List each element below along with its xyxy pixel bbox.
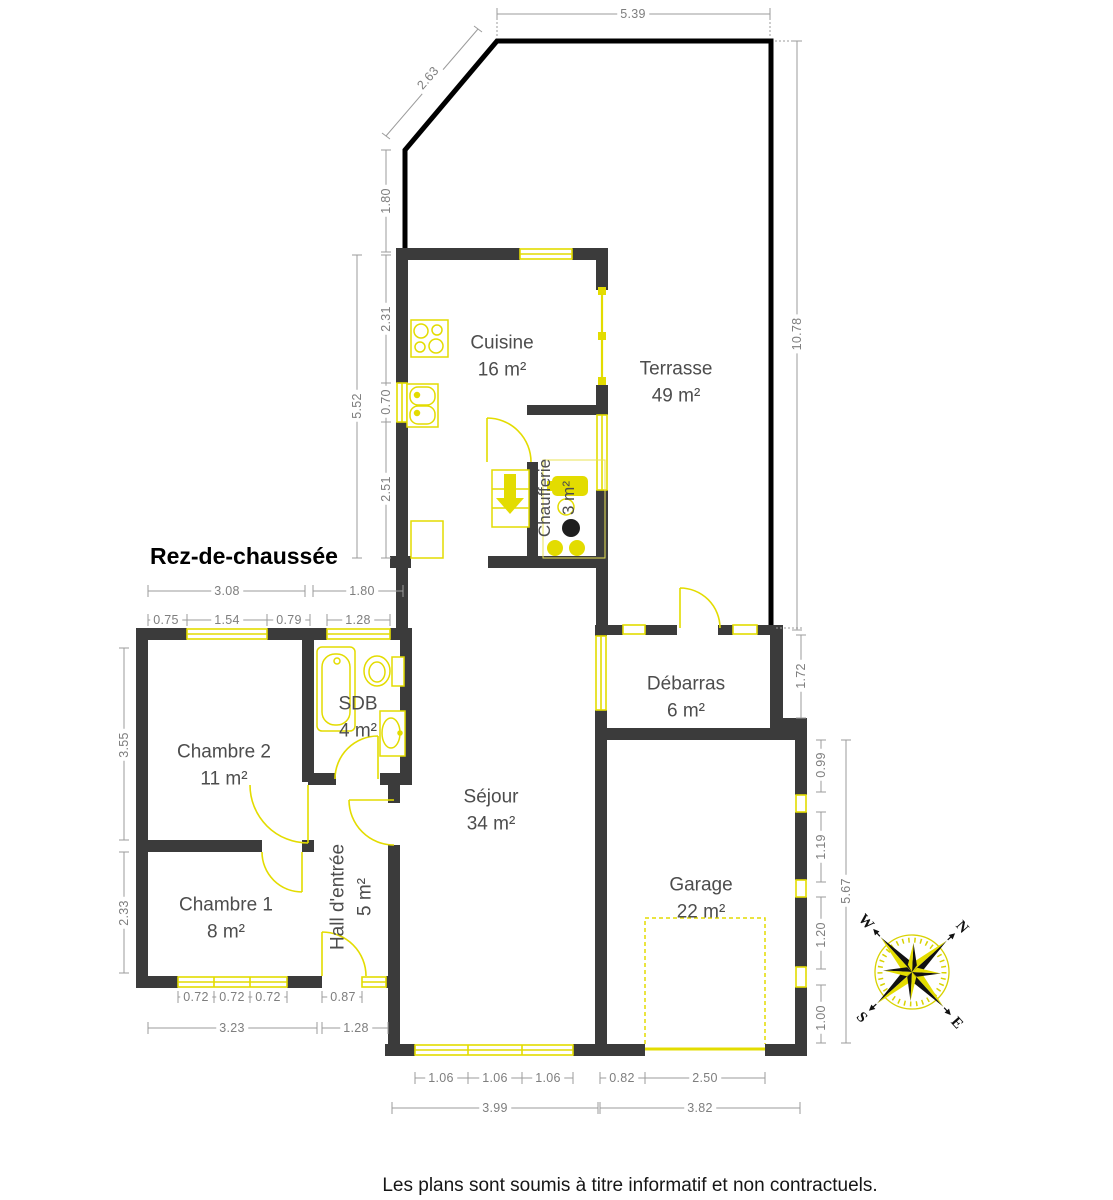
room-name: Chambre 2 <box>177 739 271 766</box>
glass-door <box>598 287 606 385</box>
dim-ch1-c: 0.72 <box>252 990 284 1004</box>
dim-ch1-b: 0.72 <box>216 990 248 1004</box>
room-label-chambre2: Chambre 2 11 m² <box>177 739 271 792</box>
dim-garage-right-total: 5.67 <box>839 875 853 907</box>
room-label-chambre1: Chambre 1 8 m² <box>179 892 273 945</box>
floor-plan-drawing: N E S W <box>0 0 1113 1200</box>
room-area: 6 m² <box>647 698 725 725</box>
dim-ch2-total: 3.08 <box>211 584 243 598</box>
toilet-icon <box>364 656 404 686</box>
compass-west-label: W <box>855 911 877 933</box>
dim-kitchen-a: 2.31 <box>379 303 393 335</box>
kitchen-sink-icon <box>407 384 438 427</box>
dim-garage-total: 3.82 <box>684 1101 716 1115</box>
dim-hall-total: 1.28 <box>340 1021 372 1035</box>
compass-rose: N E S W <box>805 866 1017 1077</box>
dim-sejour-b: 1.06 <box>479 1071 511 1085</box>
dim-sdb-window: 1.28 <box>342 613 374 627</box>
room-label-cuisine: Cuisine 16 m² <box>470 330 533 383</box>
dim-kitchen-c: 2.51 <box>379 473 393 505</box>
dim-ch2-left: 3.55 <box>117 729 131 761</box>
room-name: Débarras <box>647 671 725 698</box>
room-area: 49 m² <box>640 383 713 410</box>
floor-plan: N E S W Rez-de-chaussée Cuisine 16 m² Te… <box>0 0 1113 1200</box>
room-area: 34 m² <box>464 811 519 838</box>
dim-sejour-total: 3.99 <box>479 1101 511 1115</box>
room-area: 16 m² <box>470 357 533 384</box>
room-area: 5 m² <box>352 844 379 950</box>
stairs-icon <box>492 470 529 527</box>
dim-sdb-total: 1.80 <box>346 584 378 598</box>
dim-garage-right-b: 1.19 <box>814 831 828 863</box>
compass-north-label: N <box>952 918 971 937</box>
dim-sejour-a: 1.06 <box>425 1071 457 1085</box>
dim-garage-door: 2.50 <box>689 1071 721 1085</box>
room-label-hall: Hall d'entrée 5 m² <box>325 844 378 950</box>
compass-star <box>830 890 994 1054</box>
room-label-sejour: Séjour 34 m² <box>464 784 519 837</box>
room-name: Séjour <box>464 784 519 811</box>
room-area: 3 m² <box>557 459 581 537</box>
dim-terrace-left: 1.80 <box>379 185 393 217</box>
terrace-outline <box>405 41 771 625</box>
dim-ch1-a: 0.72 <box>180 990 212 1004</box>
room-area: 22 m² <box>669 899 732 926</box>
room-label-sdb: SDB 4 m² <box>338 691 377 744</box>
dim-ch1-left: 2.33 <box>117 897 131 929</box>
room-name: Cuisine <box>470 330 533 357</box>
room-label-garage: Garage 22 m² <box>669 872 732 925</box>
dim-ch2-b: 1.54 <box>211 613 243 627</box>
dim-ch2-c: 0.79 <box>273 613 305 627</box>
room-name: SDB <box>338 691 377 718</box>
room-name: Chaufferie <box>533 459 557 537</box>
dim-garage-right-d: 1.00 <box>814 1002 828 1034</box>
dim-sejour-c: 1.06 <box>532 1071 564 1085</box>
dim-garage-a: 0.82 <box>606 1071 638 1085</box>
dim-kitchen-b: 0.70 <box>379 386 393 418</box>
room-area: 11 m² <box>177 766 271 793</box>
compass-south-label: S <box>853 1009 870 1026</box>
dim-garage-right-c: 1.20 <box>814 919 828 951</box>
disclaimer-text: Les plans sont soumis à titre informatif… <box>310 1175 950 1197</box>
room-area: 4 m² <box>338 718 377 745</box>
room-name: Garage <box>669 872 732 899</box>
washbasin-icon <box>380 711 405 756</box>
dim-top-width: 5.39 <box>617 7 649 21</box>
dim-ch2-a: 0.75 <box>150 613 182 627</box>
dim-terrace-right: 10.78 <box>790 315 804 354</box>
dim-hall-door: 0.87 <box>327 990 359 1004</box>
room-label-terrasse: Terrasse 49 m² <box>640 356 713 409</box>
floor-title: Rez-de-chaussée <box>150 543 338 570</box>
room-area: 8 m² <box>179 919 273 946</box>
dim-garage-right-a: 0.99 <box>814 749 828 781</box>
appliance-icon <box>411 521 443 558</box>
cooktop-icon <box>411 320 448 357</box>
room-name: Chambre 1 <box>179 892 273 919</box>
dim-debarras-right: 1.72 <box>794 660 808 692</box>
dim-kitchen-total: 5.52 <box>350 390 364 422</box>
dim-ch1-total: 3.23 <box>216 1021 248 1035</box>
room-label-debarras: Débarras 6 m² <box>647 671 725 724</box>
room-name: Hall d'entrée <box>325 844 352 950</box>
room-name: Terrasse <box>640 356 713 383</box>
garage-door <box>645 918 765 1049</box>
room-label-chaufferie: Chaufferie 3 m² <box>533 459 581 537</box>
compass-east-label: E <box>947 1014 966 1032</box>
